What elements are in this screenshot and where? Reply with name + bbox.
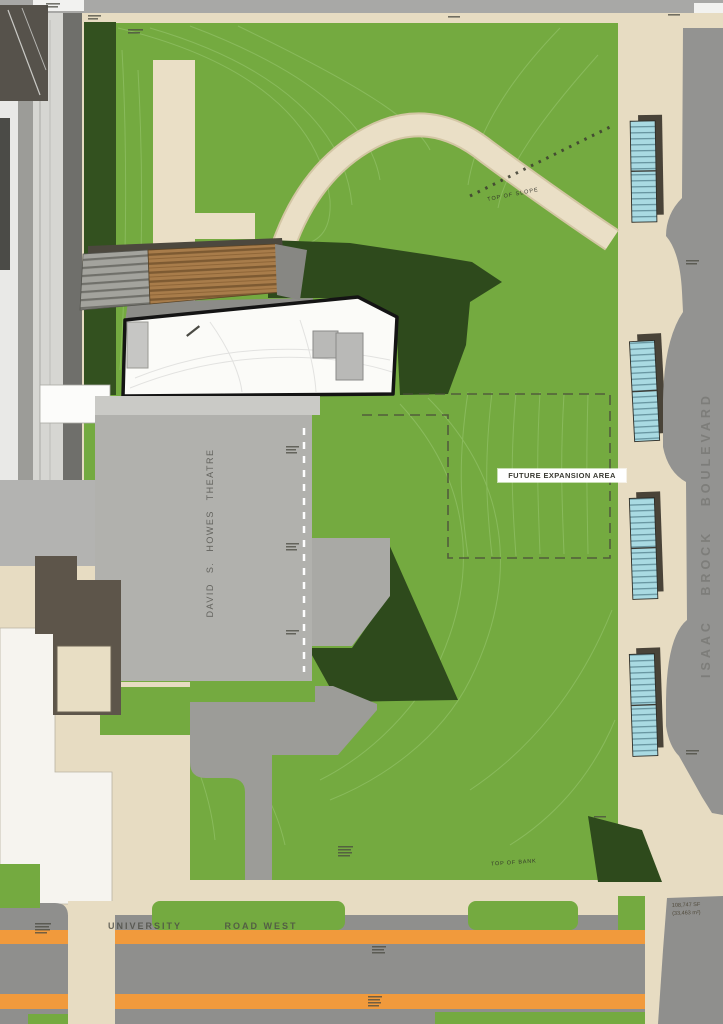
top-road-strip — [0, 0, 723, 13]
roof-left-block — [127, 322, 148, 368]
hedge-shadow-strip — [84, 22, 116, 395]
parking-bay — [629, 647, 664, 756]
theatre-label: DAVID S. HOWES THEATRE — [205, 438, 215, 628]
east-road — [663, 28, 723, 815]
future-expansion-label: FUTURE EXPANSION AREA — [498, 469, 626, 482]
parking-bays — [629, 115, 667, 757]
site-plan-drawing — [0, 0, 723, 1024]
parking-bay — [630, 115, 664, 223]
road-west-label: ROAD WEST — [221, 921, 301, 931]
parking-bay — [629, 333, 667, 442]
boulevard-label: ISAAC BROCK BOULEVARD — [699, 285, 713, 785]
crosswalk-west — [68, 901, 115, 1024]
site-plan-canvas: FUTURE EXPANSION AREA DAVID S. HOWES THE… — [0, 0, 723, 1024]
parcel-area-label: 108,747 SF (33,463 m²) — [672, 900, 723, 918]
parking-bay — [629, 491, 664, 599]
university-road-label: UNIVERSITY — [107, 921, 183, 931]
